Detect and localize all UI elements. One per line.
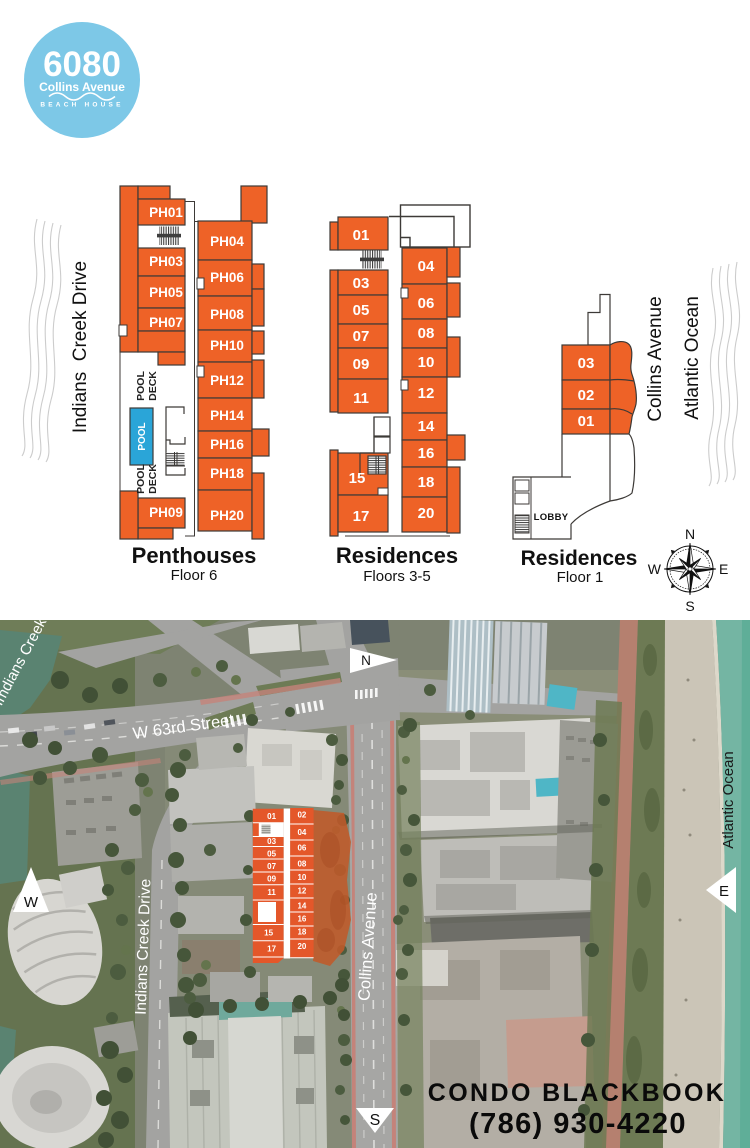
svg-text:17: 17 xyxy=(267,944,276,953)
svg-text:05: 05 xyxy=(353,302,370,319)
svg-text:12: 12 xyxy=(297,887,306,896)
svg-text:16: 16 xyxy=(418,445,435,462)
svg-text:16: 16 xyxy=(297,915,306,924)
svg-text:Floor 6: Floor 6 xyxy=(171,567,218,584)
svg-text:09: 09 xyxy=(267,874,276,883)
svg-text:02: 02 xyxy=(297,810,306,819)
svg-text:S: S xyxy=(370,1112,381,1129)
svg-text:17: 17 xyxy=(353,508,370,525)
svg-text:20: 20 xyxy=(418,505,435,522)
svg-text:06: 06 xyxy=(297,844,306,853)
svg-text:PH09: PH09 xyxy=(149,505,183,520)
svg-text:PH16: PH16 xyxy=(210,437,244,452)
svg-text:W: W xyxy=(24,894,39,911)
svg-text:Residences: Residences xyxy=(521,547,638,570)
svg-text:04: 04 xyxy=(418,258,435,275)
svg-text:W: W xyxy=(648,561,662,577)
svg-text:20: 20 xyxy=(297,942,306,951)
svg-text:08: 08 xyxy=(418,325,435,342)
svg-text:PH14: PH14 xyxy=(210,408,244,423)
svg-text:10: 10 xyxy=(418,354,435,371)
svg-text:E: E xyxy=(719,561,728,577)
svg-text:09: 09 xyxy=(353,356,370,373)
svg-text:Collins Avenue: Collins Avenue xyxy=(645,296,666,421)
svg-text:PH04: PH04 xyxy=(210,234,244,249)
svg-text:E: E xyxy=(719,883,729,900)
svg-text:05: 05 xyxy=(267,849,276,858)
svg-text:Floor 1: Floor 1 xyxy=(557,569,604,586)
svg-text:Collins Avenue: Collins Avenue xyxy=(39,80,125,94)
svg-text:PH18: PH18 xyxy=(210,466,244,481)
svg-text:PH05: PH05 xyxy=(149,285,183,300)
svg-text:Atlantic Ocean: Atlantic Ocean xyxy=(720,751,737,849)
svg-text:POOL: POOL xyxy=(137,422,148,450)
svg-text:PH07: PH07 xyxy=(149,315,183,330)
svg-text:15: 15 xyxy=(264,928,273,937)
svg-text:06: 06 xyxy=(418,295,435,312)
svg-text:07: 07 xyxy=(353,328,370,345)
svg-text:Penthouses: Penthouses xyxy=(132,543,257,568)
svg-text:N: N xyxy=(361,653,371,668)
svg-text:14: 14 xyxy=(418,418,435,435)
svg-text:14: 14 xyxy=(297,902,306,911)
svg-text:03: 03 xyxy=(578,355,595,372)
svg-text:04: 04 xyxy=(297,828,306,837)
svg-text:11: 11 xyxy=(353,390,369,407)
svg-text:07: 07 xyxy=(267,862,276,871)
svg-text:Atlantic Ocean: Atlantic Ocean xyxy=(682,296,703,420)
svg-text:15: 15 xyxy=(349,470,366,487)
svg-text:CONDO BLACKBOOK: CONDO BLACKBOOK xyxy=(428,1079,727,1107)
svg-text:Indians Creek Drive: Indians Creek Drive xyxy=(70,261,91,433)
svg-text:01: 01 xyxy=(353,227,370,244)
svg-text:PH08: PH08 xyxy=(210,307,244,322)
svg-text:BEACH HOUSE: BEACH HOUSE xyxy=(40,102,123,109)
svg-text:PH12: PH12 xyxy=(210,373,244,388)
svg-text:10: 10 xyxy=(297,873,306,882)
svg-text:POOLDECK: POOLDECK xyxy=(135,464,159,494)
svg-text:18: 18 xyxy=(418,474,435,491)
svg-text:PH01: PH01 xyxy=(149,205,183,220)
svg-text:01: 01 xyxy=(578,413,595,430)
svg-text:PH06: PH06 xyxy=(210,270,244,285)
svg-text:(786) 930-4220: (786) 930-4220 xyxy=(469,1108,687,1140)
svg-text:03: 03 xyxy=(267,837,276,846)
svg-text:02: 02 xyxy=(578,387,595,404)
svg-text:Residences: Residences xyxy=(336,543,458,568)
svg-text:S: S xyxy=(685,598,694,614)
svg-text:03: 03 xyxy=(353,275,370,292)
svg-text:PH20: PH20 xyxy=(210,508,244,523)
svg-text:LOBBY: LOBBY xyxy=(534,512,569,523)
svg-text:01: 01 xyxy=(267,812,276,821)
svg-text:18: 18 xyxy=(297,928,306,937)
svg-text:6080: 6080 xyxy=(43,45,121,84)
svg-text:POOLDECK: POOLDECK xyxy=(135,371,159,401)
svg-text:N: N xyxy=(685,526,695,542)
svg-text:08: 08 xyxy=(297,860,306,869)
svg-text:Floors 3-5: Floors 3-5 xyxy=(363,568,431,585)
svg-text:12: 12 xyxy=(418,385,435,402)
svg-text:PH10: PH10 xyxy=(210,338,244,353)
svg-text:11: 11 xyxy=(267,888,276,897)
svg-text:PH03: PH03 xyxy=(149,254,183,269)
